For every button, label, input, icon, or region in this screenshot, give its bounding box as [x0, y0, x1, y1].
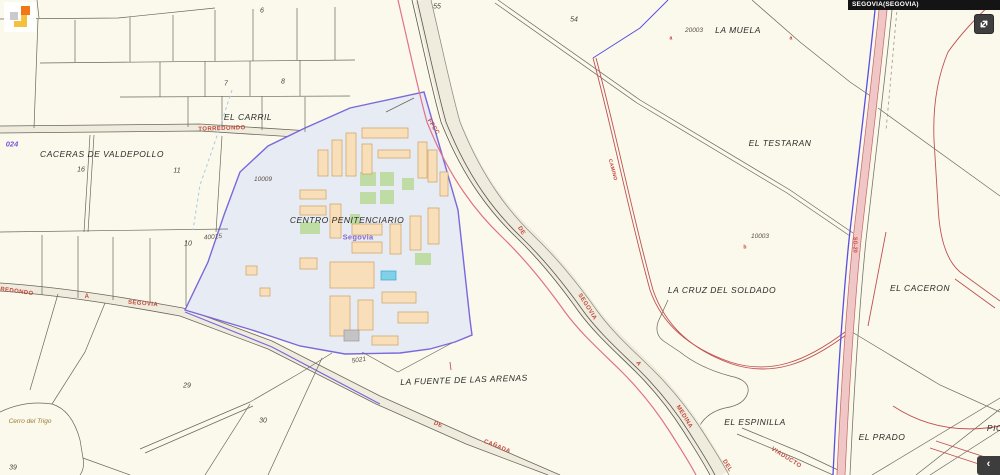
municipality-bar: SEGOVIA(SEGOVIA) [848, 0, 1000, 10]
chevron-left-icon: ‹ [987, 458, 991, 470]
parcel-boundaries [0, 0, 1000, 475]
expand-arrows-icon [975, 15, 993, 33]
expand-button[interactable] [974, 14, 994, 34]
map-canvas[interactable] [0, 0, 1000, 475]
gray-building [344, 330, 359, 341]
layers-icon[interactable] [4, 2, 36, 32]
collapse-panel-button[interactable]: ‹ [977, 456, 1000, 475]
layers-icon-gray-square [10, 12, 18, 20]
pink-road [833, 0, 898, 475]
pool [381, 271, 396, 280]
municipal-boundary-line [593, 0, 668, 58]
layers-icon-orange-square [21, 6, 30, 15]
map-viewer: EL CARRIL CACERAS DE VALDEPOLLO CENTRO P… [0, 0, 1000, 475]
